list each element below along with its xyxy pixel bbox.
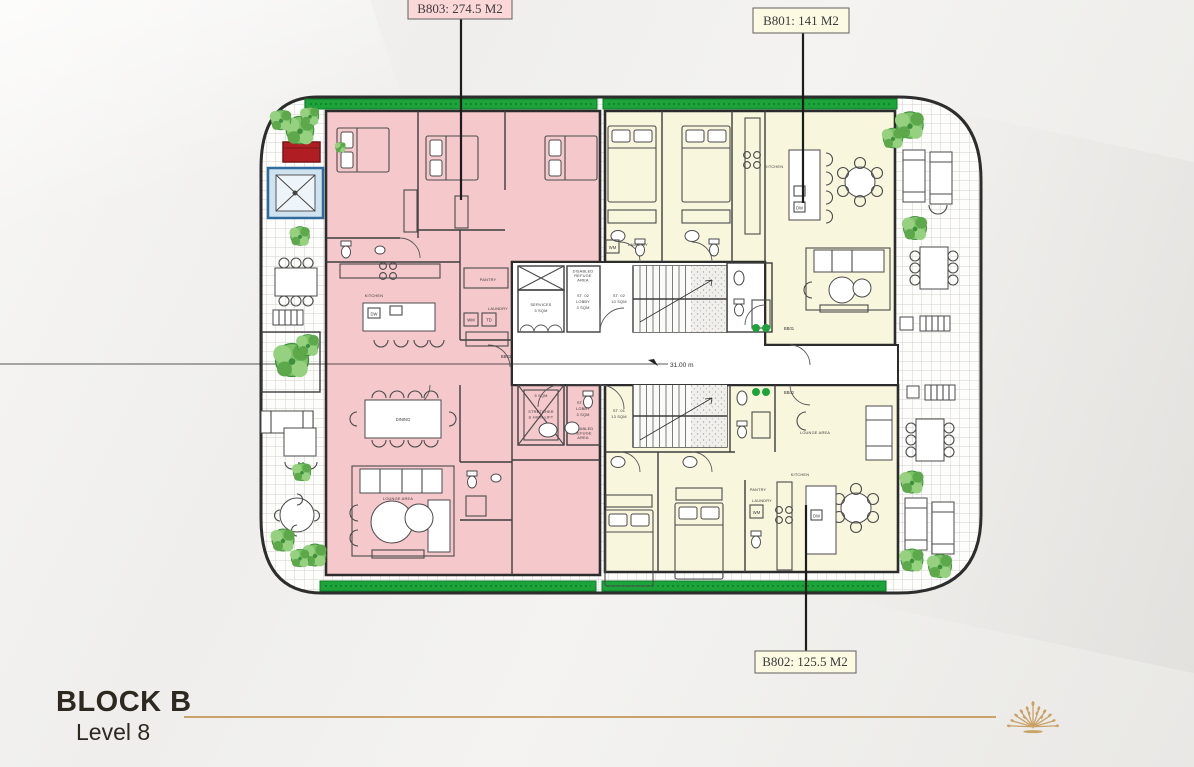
- entry-shrub: [752, 388, 760, 396]
- floorplan-canvas: SERVICES 5 SQM DISABLED REFUGE AREA ST. …: [0, 0, 1194, 767]
- svg-text:SERVICES: SERVICES: [530, 302, 551, 307]
- svg-text:ST. 02: ST. 02: [577, 293, 589, 298]
- corridor-tree-pair-top: [335, 142, 346, 152]
- st01-stair-label: ST. 01: [613, 408, 625, 413]
- svg-text:AREA: AREA: [577, 278, 589, 283]
- svg-text:DW: DW: [813, 514, 820, 519]
- svg-text:B803: 274.5 M2: B803: 274.5 M2: [417, 1, 503, 16]
- svg-text:LAUNDRY: LAUNDRY: [628, 242, 648, 247]
- svg-text:PANTRY: PANTRY: [750, 487, 767, 492]
- svg-text:LOBBY: LOBBY: [576, 299, 590, 304]
- svg-text:B802: 125.5 M2: B802: 125.5 M2: [762, 654, 848, 669]
- svg-text:TD: TD: [486, 318, 492, 323]
- svg-text:KITCHEN: KITCHEN: [765, 164, 783, 169]
- svg-text:LOUNGE AREA: LOUNGE AREA: [383, 496, 413, 501]
- svg-text:DW: DW: [371, 312, 378, 317]
- svg-text:10 SQM: 10 SQM: [611, 299, 626, 304]
- svg-text:AREA: AREA: [577, 435, 589, 440]
- svg-text:KITCHEN: KITCHEN: [791, 472, 809, 477]
- level-label: Level 8: [76, 719, 150, 746]
- svg-text:& HIGH LIFT: & HIGH LIFT: [529, 415, 554, 420]
- core-stair-st01: [633, 385, 727, 447]
- svg-text:PANTRY: PANTRY: [480, 277, 497, 282]
- entry-shrub: [752, 324, 760, 332]
- footer-divider: [184, 716, 996, 718]
- svg-text:WM: WM: [609, 245, 617, 250]
- core-stair-st02: [633, 266, 727, 332]
- svg-text:LAUNDRY: LAUNDRY: [752, 498, 772, 503]
- svg-text:B801: 141 M2: B801: 141 M2: [763, 13, 839, 28]
- svg-text:LAUNDRY: LAUNDRY: [488, 306, 508, 311]
- door-label-b801: BB01: [784, 326, 795, 331]
- svg-text:31.00 m: 31.00 m: [670, 362, 694, 369]
- svg-text:WM: WM: [467, 318, 475, 323]
- svg-text:5 SQM: 5 SQM: [534, 308, 547, 313]
- svg-text:STRETCHER: STRETCHER: [528, 409, 554, 414]
- svg-text:3 SQM: 3 SQM: [576, 305, 589, 310]
- svg-text:KITCHEN: KITCHEN: [365, 293, 383, 298]
- block-title: BLOCK B: [56, 686, 192, 719]
- svg-text:DINING: DINING: [396, 417, 411, 422]
- svg-text:13 SQM: 13 SQM: [611, 414, 626, 419]
- st02-stair-label: ST. 02: [613, 293, 625, 298]
- door-label-b802: BB02: [784, 390, 795, 395]
- svg-text:LOUNGE AREA: LOUNGE AREA: [800, 430, 830, 435]
- svg-text:DW: DW: [796, 206, 803, 211]
- svg-text:WM: WM: [753, 510, 761, 515]
- svg-text:3 SQM: 3 SQM: [576, 412, 589, 417]
- brand-tree-logo: [1004, 690, 1062, 752]
- svg-text:BB03: BB03: [501, 354, 512, 359]
